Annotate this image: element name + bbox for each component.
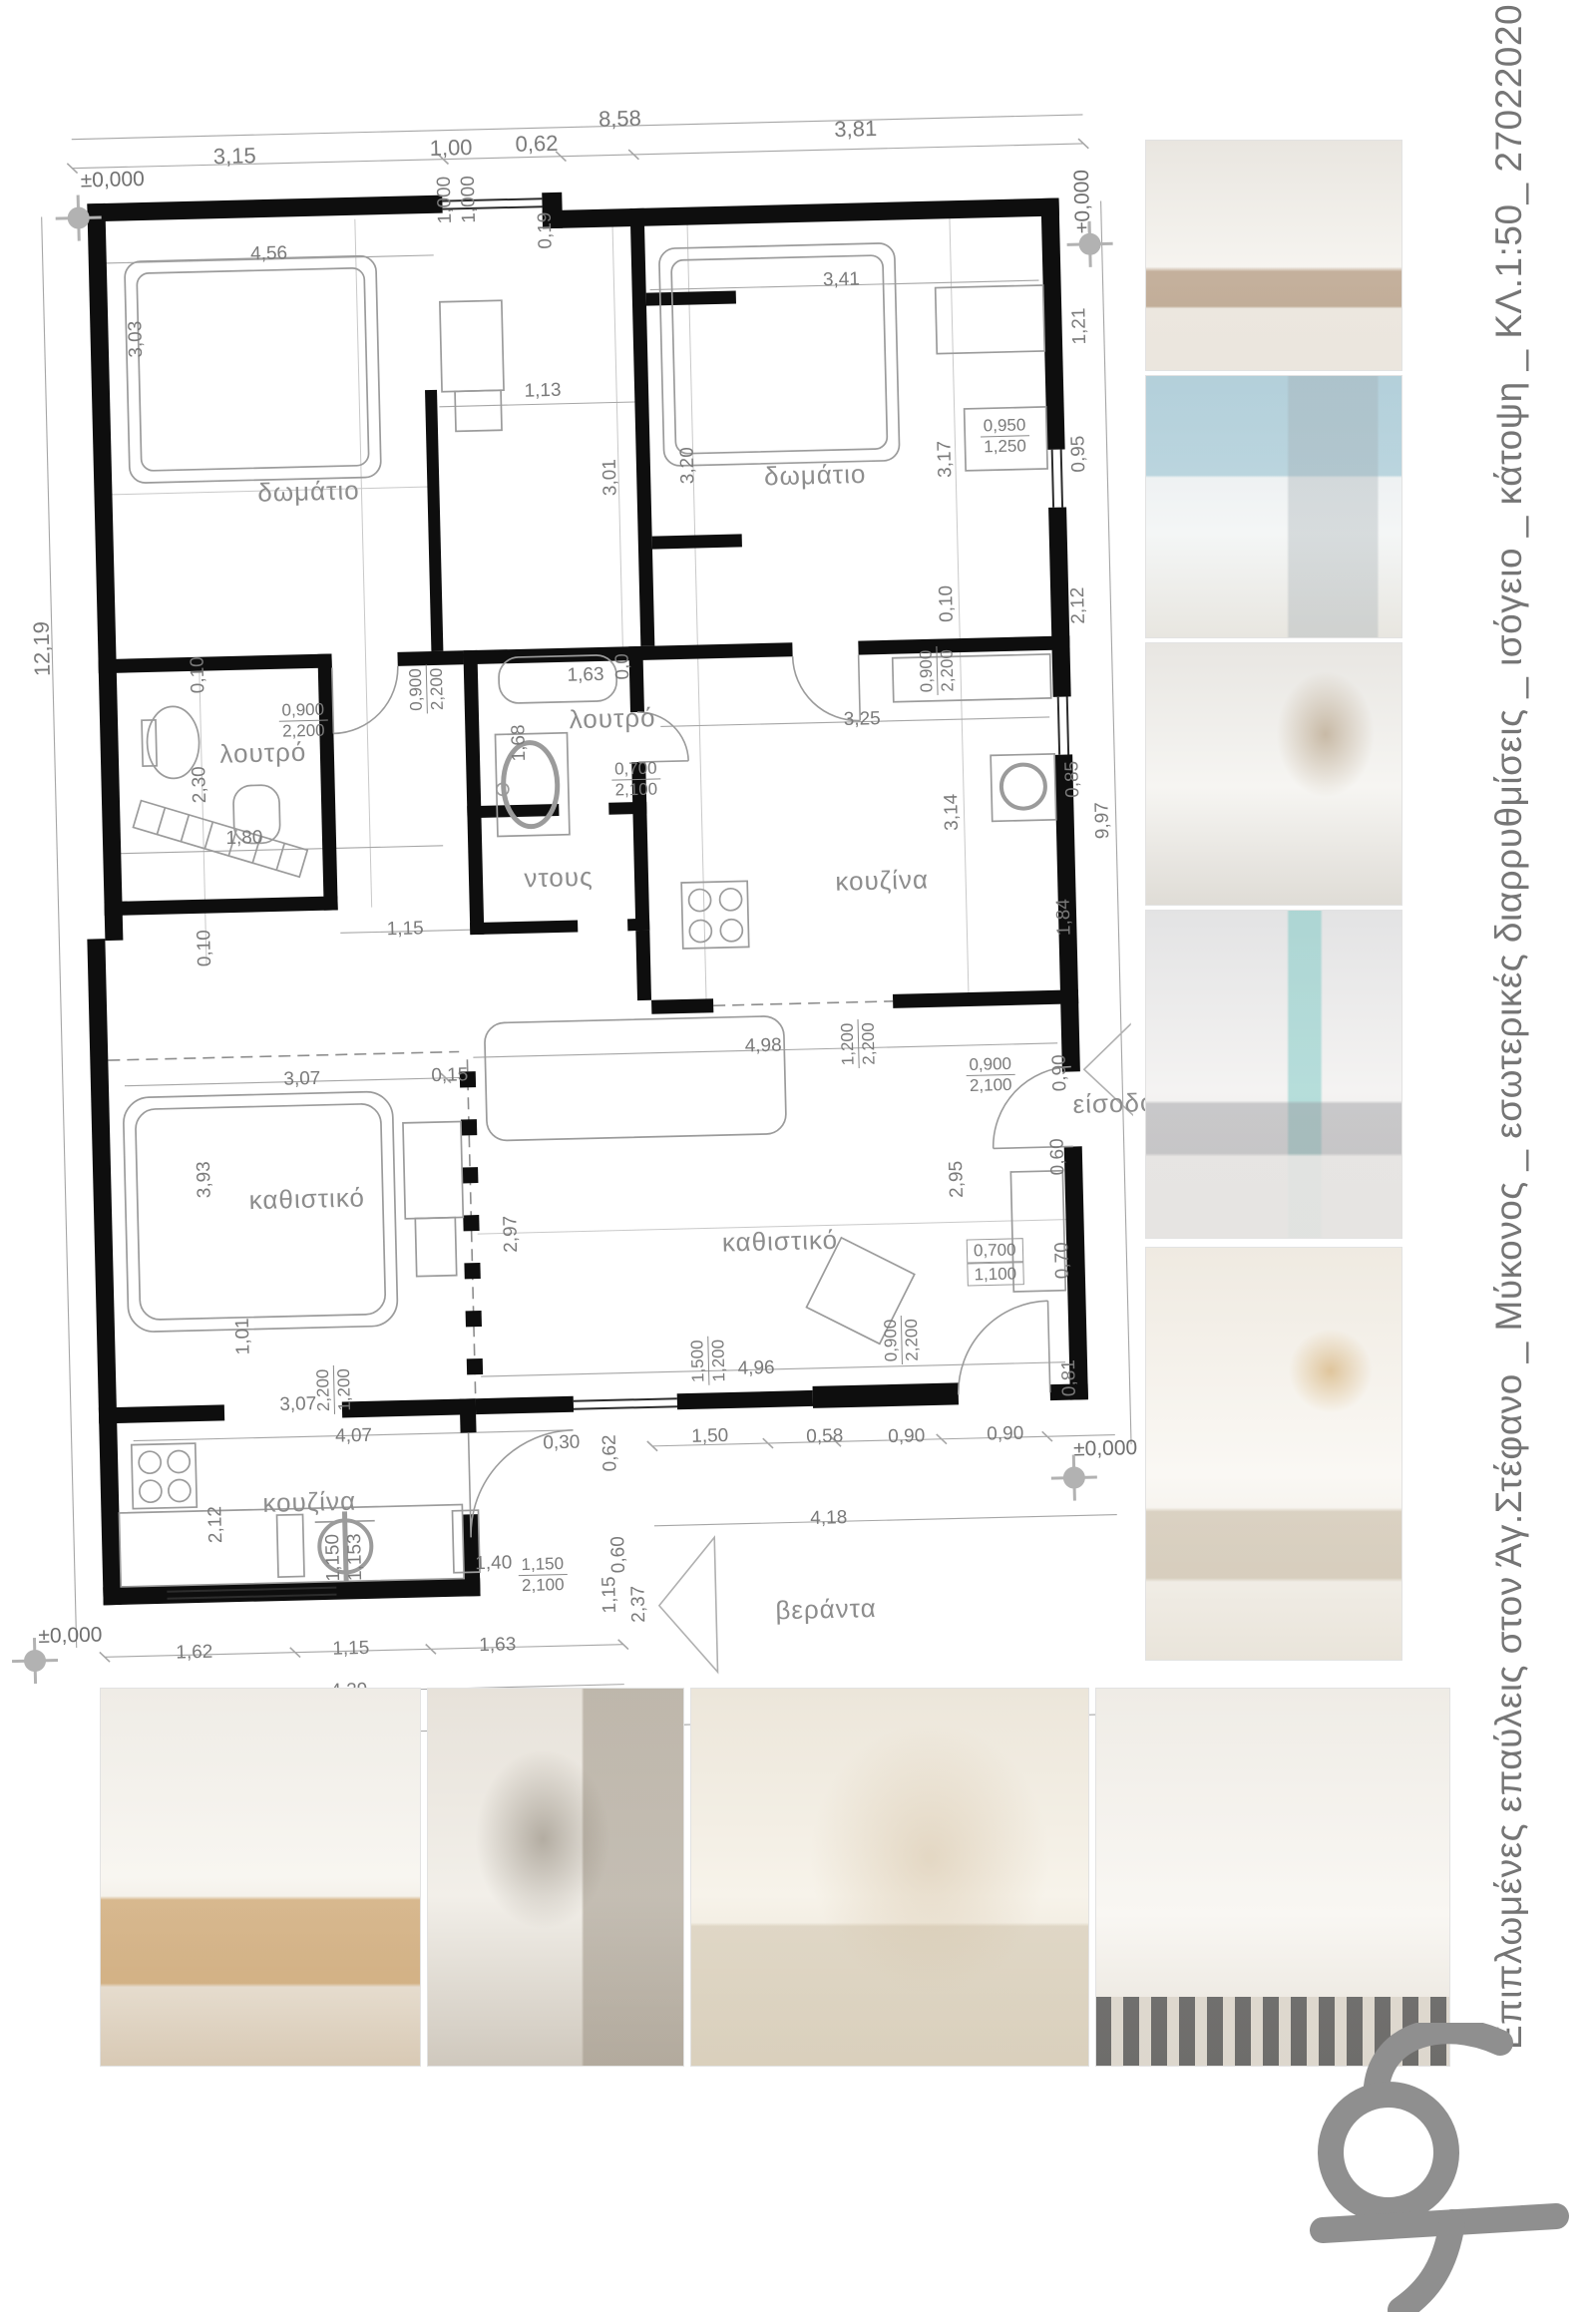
dimension-label: 0,60 (1047, 1138, 1070, 1176)
dimension-fraction-label: 0,9002,200 (916, 646, 957, 696)
survey-cross-icon (55, 194, 102, 241)
room-label: καθιστικό (722, 1225, 839, 1259)
dimension-label: 0,90 (888, 1425, 926, 1448)
dimension-label: 2,30 (189, 766, 211, 804)
floor-plan: δωμάτιοδωμάτιολουτρόλουτρόντουςκουζίνακα… (0, 0, 1148, 1768)
dimension-label: 3,93 (194, 1161, 216, 1199)
dimension-label: 0,60 (607, 1536, 630, 1574)
dimension-label: 1,68 (508, 724, 531, 762)
dimension-label: 0,10 (936, 585, 959, 623)
dimension-label: 4,56 (250, 242, 288, 265)
dimension-label: 1,153 (344, 1533, 367, 1581)
dimension-label: 0,30 (543, 1432, 581, 1455)
survey-cross-icon (1066, 220, 1113, 267)
dimension-label: 2,95 (946, 1161, 969, 1199)
dimension-label: 12,19 (29, 621, 56, 677)
living-room-sofa-photo (1145, 910, 1402, 1239)
dimension-fraction-label: 1,5001,200 (687, 1337, 728, 1386)
plan-labels: δωμάτιοδωμάτιολουτρόλουτρόντουςκουζίνακα… (0, 0, 1148, 1768)
dimension-fraction-label: 2,2001,200 (313, 1365, 354, 1415)
drawing-sheet: { "title_block": { "project_title": "Επι… (0, 0, 1596, 2312)
stone-oven-kitchen-photo (427, 1688, 684, 2067)
room-label: κουζίνα (262, 1486, 356, 1519)
dimension-fraction-label: 0,9501,250 (981, 415, 1030, 456)
dimension-label: 3,20 (676, 447, 699, 485)
dimension-label: 0,85 (1061, 761, 1084, 799)
room-label: λουτρό (569, 702, 656, 735)
dimension-label: 4,07 (335, 1425, 373, 1448)
dimension-label: 1,50 (691, 1425, 729, 1448)
dimension-label: 0,70 (1051, 1242, 1074, 1280)
dimension-label: 3,17 (934, 441, 957, 479)
project-title: Επιπλωμένες επαύλεις στον Άγ.Στέφανο _ Μ… (1488, 5, 1530, 2050)
dimension-label: 1,150 (322, 1534, 345, 1582)
room-label: ντους (524, 862, 594, 895)
dimension-label: 0,10 (187, 656, 209, 694)
dimension-fraction-label: 0,9002,200 (881, 1316, 922, 1365)
dimension-label: 1,62 (176, 1642, 213, 1665)
dimension-label: 4,96 (737, 1357, 775, 1380)
dimension-label: 1,13 (524, 380, 562, 403)
bathroom-vanity-photo (1145, 375, 1402, 638)
white-room-textiles-photo (1095, 1688, 1450, 2067)
dimension-fraction-label: 1,1502,100 (518, 1554, 568, 1595)
dimension-label: 0,58 (806, 1425, 844, 1448)
elevation-marker: ±0,000 (80, 168, 145, 193)
dimension-label: 0,19 (535, 211, 558, 249)
dimension-label: 3,07 (279, 1393, 317, 1416)
dimension-label: 3,81 (834, 116, 877, 143)
room-label: λουτρό (219, 737, 307, 770)
dimension-label: 4,18 (810, 1507, 848, 1530)
dimension-label: 3,07 (283, 1068, 321, 1091)
dimension-label: 0,15 (431, 1064, 469, 1087)
room-label: καθιστικό (248, 1182, 365, 1216)
room-label: δωμάτιο (764, 459, 867, 492)
room-label: βεράντα (775, 1593, 877, 1626)
kitchen-photo (1145, 1247, 1402, 1661)
dimension-fraction-label: 0,9002,200 (278, 700, 328, 741)
dimension-label: 1,40 (475, 1552, 513, 1575)
wood-kitchen-photo (100, 1688, 421, 2067)
bedroom-photo (1145, 140, 1402, 371)
dimension-label: 1,15 (332, 1638, 370, 1661)
dimension-label: 3,03 (125, 320, 148, 358)
dimension-label: 3,25 (843, 708, 881, 731)
dimension-label: 1,15 (598, 1576, 621, 1614)
dimension-label: 0,90 (987, 1423, 1024, 1446)
dimension-label: 1,84 (1053, 899, 1076, 937)
dimension-label: 2,37 (627, 1585, 650, 1623)
dimension-label: 3,41 (823, 268, 861, 291)
dimension-label: 0,62 (599, 1434, 622, 1472)
dimension-label: 1,63 (567, 664, 604, 687)
dimension-label: 2,97 (500, 1216, 523, 1254)
dimension-label: 1,01 (232, 1318, 255, 1355)
room-label: δωμάτιο (257, 475, 360, 508)
dimension-label: 3,14 (941, 794, 964, 832)
dimension-fraction-label: 0,9002,200 (406, 664, 447, 714)
dimension-label: 1,21 (1068, 307, 1091, 345)
dimension-fraction-label: 0,7002,100 (611, 758, 661, 799)
dimension-label: 1,000 (458, 176, 481, 223)
dimension-fraction-label: 0,7001,100 (967, 1238, 1024, 1286)
bathroom-niche-photo (1145, 642, 1402, 906)
bedroom-suite-photo (690, 1688, 1089, 2067)
dimension-label: 0,90 (1048, 1054, 1071, 1092)
dimension-label: 8,58 (598, 106, 641, 133)
dimension-label: 0,95 (1067, 435, 1090, 473)
dimension-label: 1,80 (225, 827, 263, 850)
logo-monogram (1293, 2023, 1584, 2312)
room-label: κουζίνα (835, 864, 929, 897)
dimension-fraction-label: 1,2002,200 (838, 1019, 879, 1069)
survey-cross-icon (11, 1638, 58, 1685)
dimension-label: 2,12 (204, 1506, 227, 1544)
dimension-label: 1,63 (479, 1634, 517, 1657)
dimension-label: 3,01 (599, 459, 622, 497)
dimension-label: 9,97 (1091, 802, 1114, 840)
dimension-label: 0,81 (1058, 1359, 1081, 1397)
dimension-label: 1,15 (386, 918, 424, 941)
dimension-label: 0,62 (515, 131, 558, 158)
dimension-label: 1,00 (429, 135, 472, 162)
dimension-label: 1,000 (434, 177, 457, 224)
dimension-label: 2,12 (1067, 586, 1090, 624)
survey-cross-icon (1050, 1454, 1097, 1501)
dimension-fraction-label: 0,9002,100 (966, 1054, 1015, 1095)
dimension-label: 0,0 (612, 653, 635, 680)
dimension-label: 4,98 (744, 1035, 782, 1058)
dimension-label: 0,10 (194, 930, 216, 967)
dimension-label: 3,15 (213, 143, 256, 170)
